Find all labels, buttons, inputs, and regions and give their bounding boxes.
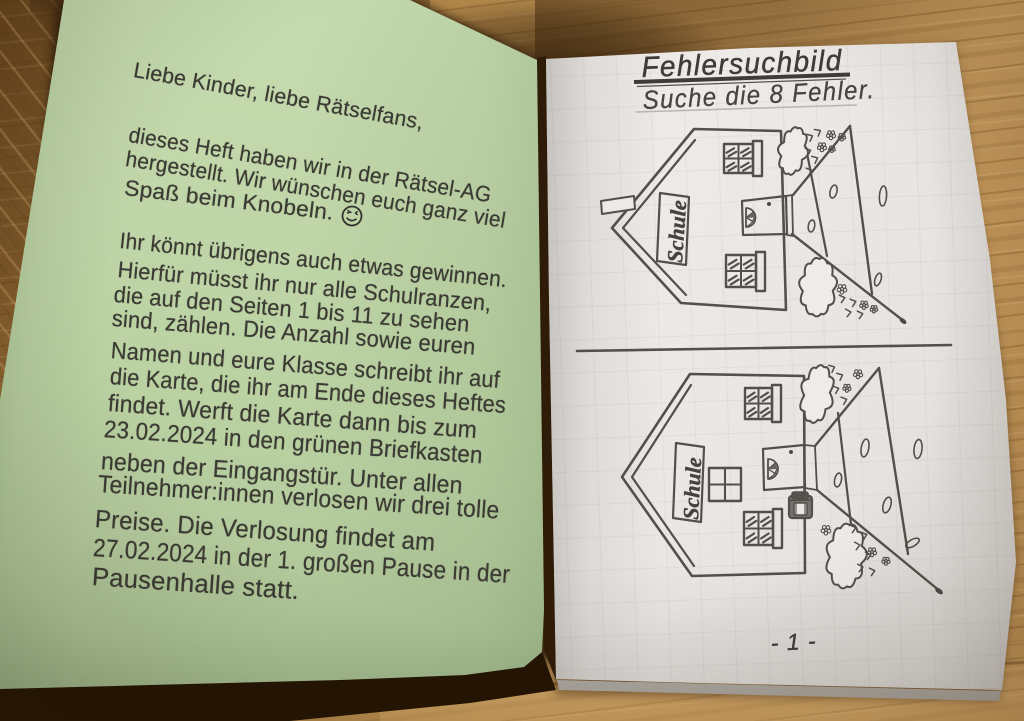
svg-text:Schule: Schule: [662, 199, 691, 263]
svg-text:Schule: Schule: [678, 456, 706, 520]
